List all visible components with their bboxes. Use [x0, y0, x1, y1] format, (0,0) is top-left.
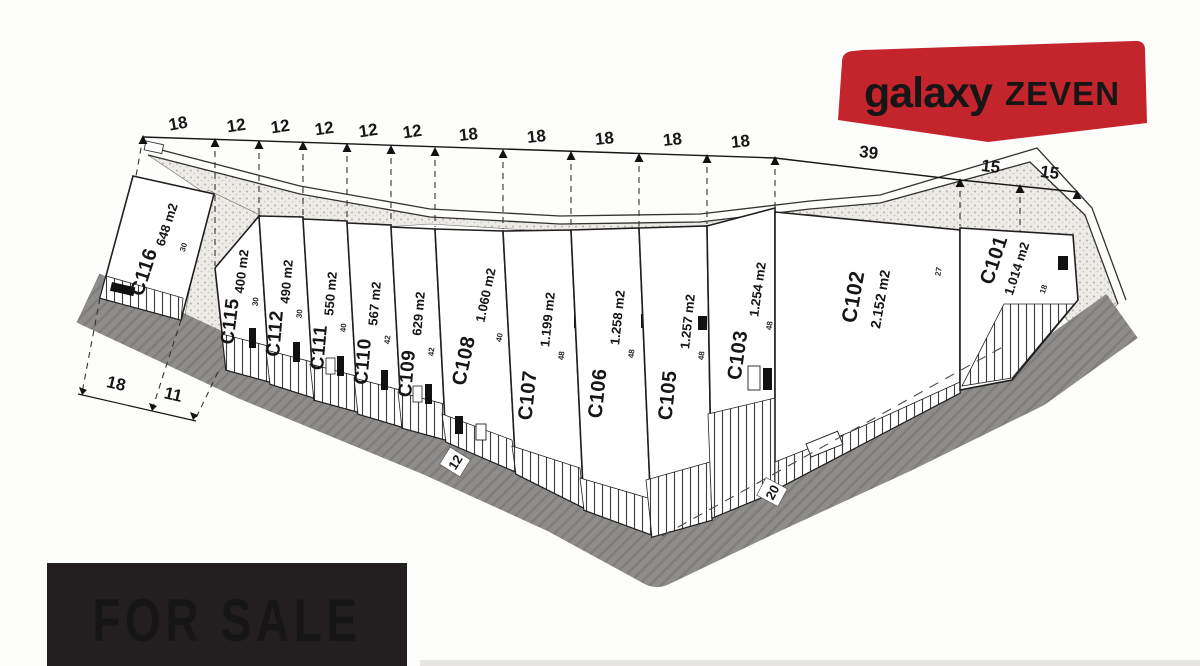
dim-label: 18	[526, 126, 547, 147]
lot-frontage-label: 48	[627, 348, 637, 358]
building-footprint	[763, 368, 772, 390]
dim-label: 18	[662, 129, 683, 150]
lot-frontage-label: 42	[383, 334, 393, 344]
dim-label: 12	[270, 116, 291, 137]
dim-label: 12	[402, 121, 423, 142]
building-outline	[748, 366, 760, 390]
dim-label: 18	[458, 124, 479, 145]
building-footprint	[425, 384, 432, 404]
lot-frontage-label: 48	[697, 350, 707, 360]
flyer-page: 18 12 12 12 12 12 18 18 18 18 18 39 15 1…	[0, 0, 1200, 666]
lot-frontage-label: 48	[557, 350, 567, 360]
dim-label: 15	[980, 156, 1001, 177]
lot-id-label: C111	[307, 324, 332, 371]
dim-label: 12	[358, 120, 379, 141]
dim-label: 18	[594, 128, 615, 149]
building-footprint	[249, 328, 256, 348]
lot-frontage-label: 30	[295, 308, 305, 318]
dim-label: 12	[226, 115, 247, 136]
lot-frontage-label: 40	[339, 322, 349, 332]
dim-label: 18	[167, 113, 189, 135]
lot-id-label: C110	[351, 338, 376, 386]
site-plan-svg: 18 12 12 12 12 12 18 18 18 18 18 39 15 1…	[0, 0, 1200, 666]
photo-edge-strip	[420, 660, 1200, 666]
brand-logo-text-zeven: ZEVEN	[1005, 75, 1120, 112]
building-footprint	[455, 416, 463, 434]
building-outline	[476, 424, 486, 440]
dim-label: 12	[314, 118, 335, 139]
lot-id-label: C109	[395, 349, 420, 398]
building-footprint	[381, 370, 388, 390]
lot-frontage-label: 30	[251, 296, 261, 306]
lot-frontage-label: 48	[764, 320, 774, 331]
for-sale-label: FOR SALE	[92, 588, 361, 654]
dim-label: 18	[730, 131, 751, 152]
dim-label: 15	[1039, 162, 1060, 183]
lot-frontage-label: 42	[427, 346, 437, 356]
dim-label: 39	[858, 142, 879, 163]
brand-logo-text-galaxy: galaxy	[864, 69, 993, 117]
building-footprint	[698, 316, 707, 330]
building-footprint	[337, 356, 344, 376]
building-footprint	[1058, 256, 1068, 270]
building-footprint	[293, 342, 300, 362]
lot-id-label: C112	[263, 310, 288, 358]
for-sale-banner: FOR SALE	[47, 563, 407, 666]
